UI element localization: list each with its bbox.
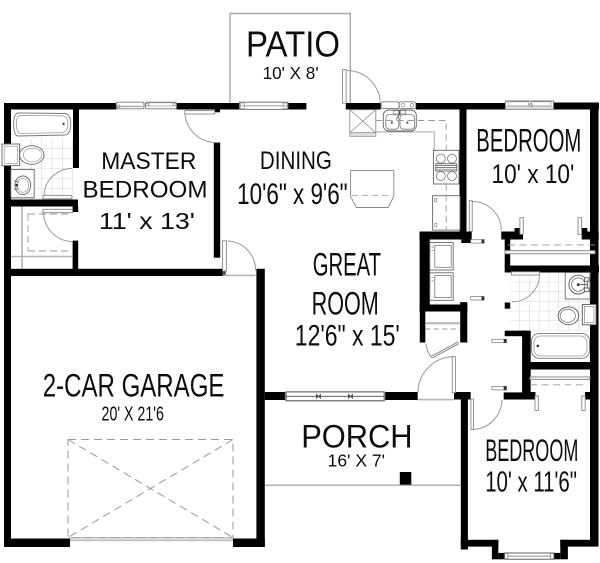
svg-text:MASTER: MASTER: [101, 148, 196, 175]
svg-text:DINING: DINING: [260, 147, 332, 175]
svg-text:PORCH: PORCH: [301, 419, 412, 455]
svg-text:PATIO: PATIO: [246, 23, 340, 64]
svg-text:BEDROOM: BEDROOM: [485, 432, 578, 468]
svg-text:10'6" x 9'6": 10'6" x 9'6": [237, 178, 348, 211]
svg-text:GREAT: GREAT: [313, 245, 381, 282]
svg-text:20' X 21'6: 20' X 21'6: [102, 404, 164, 426]
svg-text:16' X 7': 16' X 7': [328, 451, 386, 470]
svg-text:10' X 8': 10' X 8': [263, 63, 319, 83]
svg-text:12'6" x 15': 12'6" x 15': [295, 319, 400, 352]
svg-text:11' x 13': 11' x 13': [99, 208, 195, 234]
svg-text:2-CAR GARAGE: 2-CAR GARAGE: [43, 367, 225, 404]
svg-text:10' x 11'6": 10' x 11'6": [485, 465, 577, 497]
svg-text:BEDROOM: BEDROOM: [476, 123, 581, 159]
svg-text:ROOM: ROOM: [312, 284, 379, 321]
svg-text:BEDROOM: BEDROOM: [83, 177, 208, 204]
svg-text:10' x 10': 10' x 10': [492, 158, 575, 189]
